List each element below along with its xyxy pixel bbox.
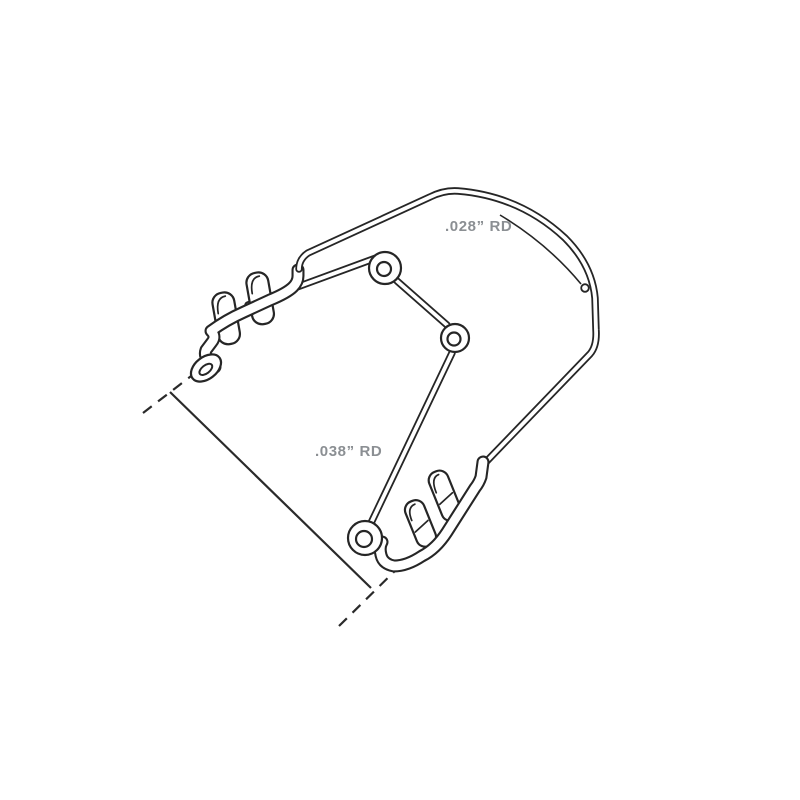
dimension-lines — [143, 370, 407, 626]
eyelet-bottom-inner — [356, 531, 372, 547]
hoop-wire-end-tip — [581, 284, 589, 292]
frame-segment-top-fill — [397, 281, 447, 325]
wire-diameter-label-028: .028” RD — [445, 218, 512, 235]
eyelet-top-inner — [377, 262, 391, 276]
eyelet-right-inner — [448, 333, 461, 346]
dimension-line — [170, 392, 371, 588]
wire-diameter-label-038: .038” RD — [315, 443, 382, 460]
curl-foot — [186, 349, 226, 387]
annotations: .028” RD .038” RD — [315, 218, 512, 460]
clip-technical-drawing: .028” RD .038” RD — [0, 0, 800, 800]
drawing-canvas: .028” RD .038” RD — [0, 0, 800, 800]
